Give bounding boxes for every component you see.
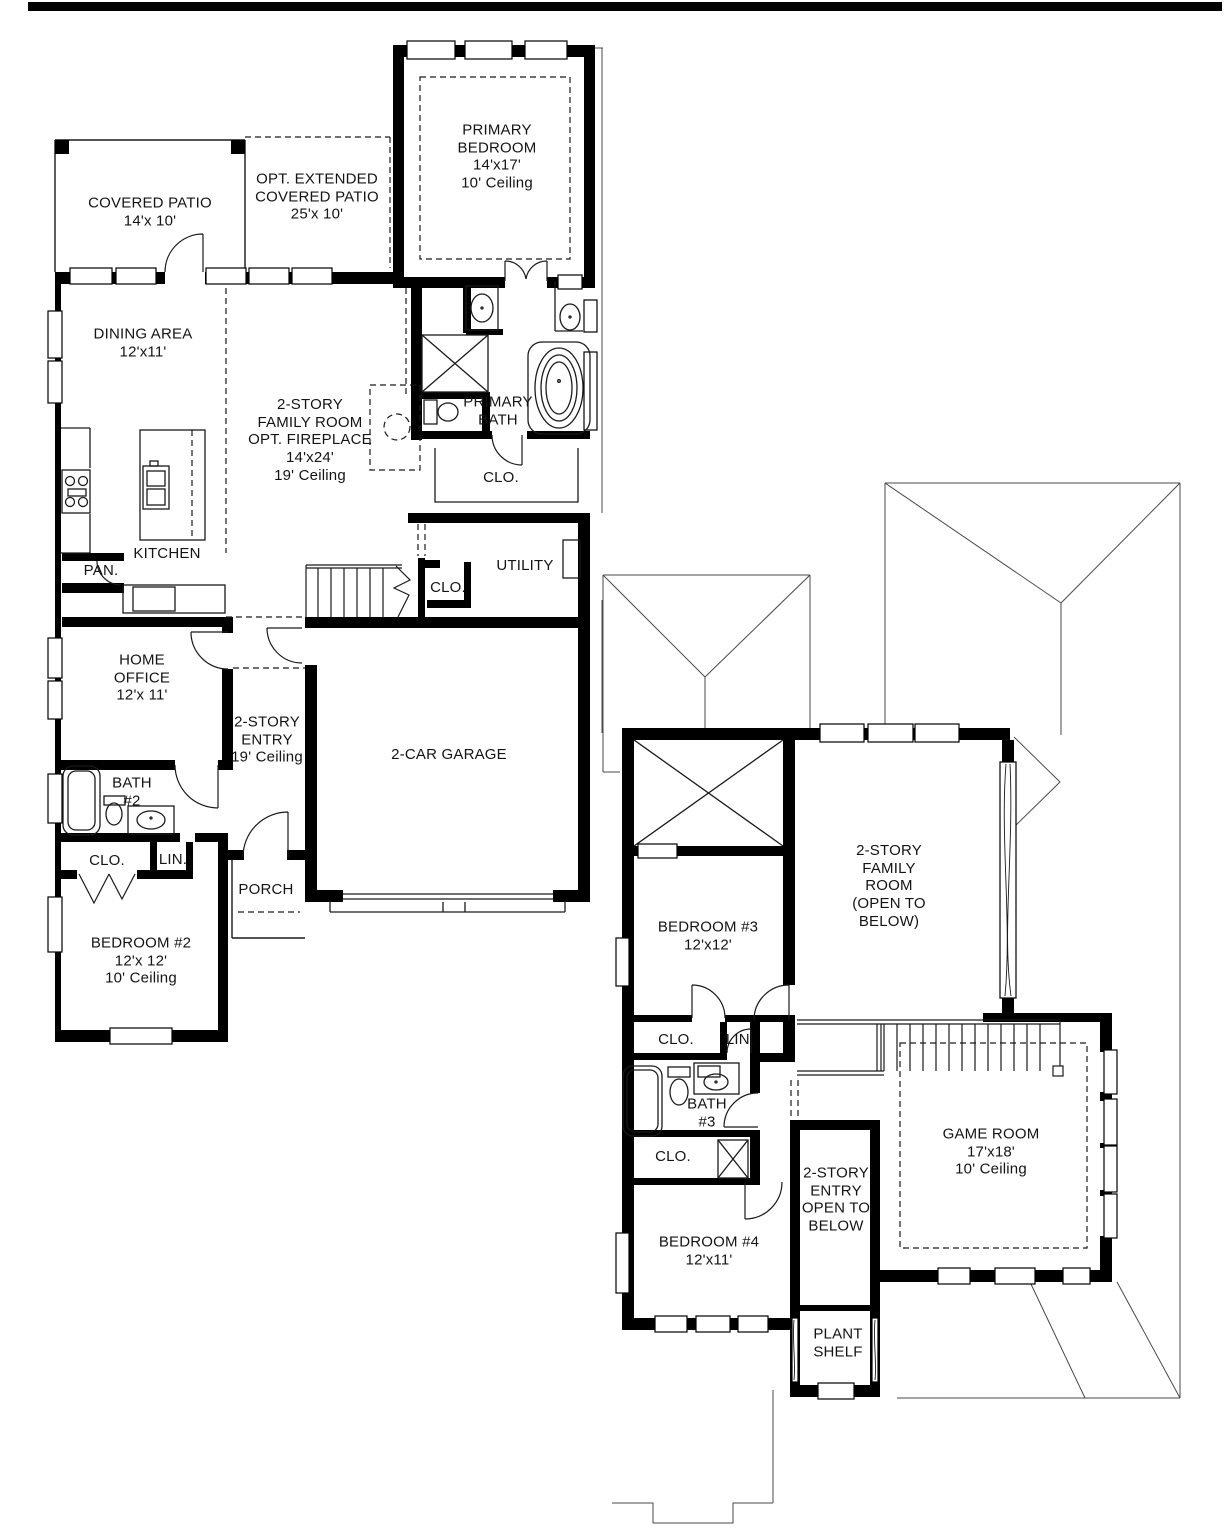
range-icon — [62, 470, 90, 513]
primary-double-door — [505, 261, 547, 281]
tray-ceiling-dashed — [420, 77, 570, 259]
kitchen-island — [140, 430, 205, 540]
stairs-layer — [306, 565, 1063, 1076]
linen-door — [727, 1029, 751, 1053]
opt-patio-dashed — [245, 137, 390, 268]
sink-icon — [128, 806, 174, 834]
closet3-door — [692, 985, 725, 1018]
front-door — [243, 812, 288, 857]
hall-door — [267, 628, 302, 663]
office-door — [191, 632, 228, 669]
shower-icon — [422, 335, 488, 392]
floorplan-page: COVERED PATIO 14'x 10' OPT. EXTENDED COV… — [0, 0, 1228, 1536]
utility-door-dashed — [418, 524, 425, 556]
primary-closet-door — [492, 435, 522, 465]
bedroom4-hall-dashed — [791, 1080, 798, 1118]
roof-outline — [595, 48, 1180, 1523]
stair-break-symbol — [394, 566, 410, 617]
bath3-door — [724, 1093, 758, 1127]
sink-icon — [694, 1063, 739, 1094]
patio-porch-outline — [55, 140, 305, 938]
floorplan-drawing — [0, 0, 1228, 1536]
pantry-door — [97, 561, 121, 585]
closet-bifold-door — [79, 874, 135, 903]
bath2-door — [175, 765, 218, 808]
toilet-icon — [668, 1067, 690, 1105]
chase-x — [718, 1140, 748, 1178]
kitchen-counter-south — [123, 585, 225, 613]
bathtub-icon — [63, 766, 100, 835]
entry-ceiling-dashed — [226, 617, 305, 668]
open-below-x — [634, 740, 783, 846]
dishwasher-icon — [133, 587, 175, 611]
water-heater-icon — [563, 540, 580, 578]
dashed-layer — [192, 77, 1087, 1248]
bedroom3-door — [754, 985, 789, 1020]
fixtures-layer — [61, 281, 1011, 1380]
kitchen-sink-icon — [143, 461, 169, 509]
walls-first-floor — [55, 45, 595, 1042]
plant-shelf-glazing — [793, 1320, 875, 1380]
garage-door — [330, 894, 565, 912]
garden-tub-icon — [528, 342, 590, 434]
closet-shelf — [435, 448, 578, 502]
bedroom4-door — [745, 1182, 782, 1219]
toilet-icon — [104, 796, 125, 825]
toilet-icon — [424, 400, 458, 424]
patio-door — [165, 234, 203, 272]
